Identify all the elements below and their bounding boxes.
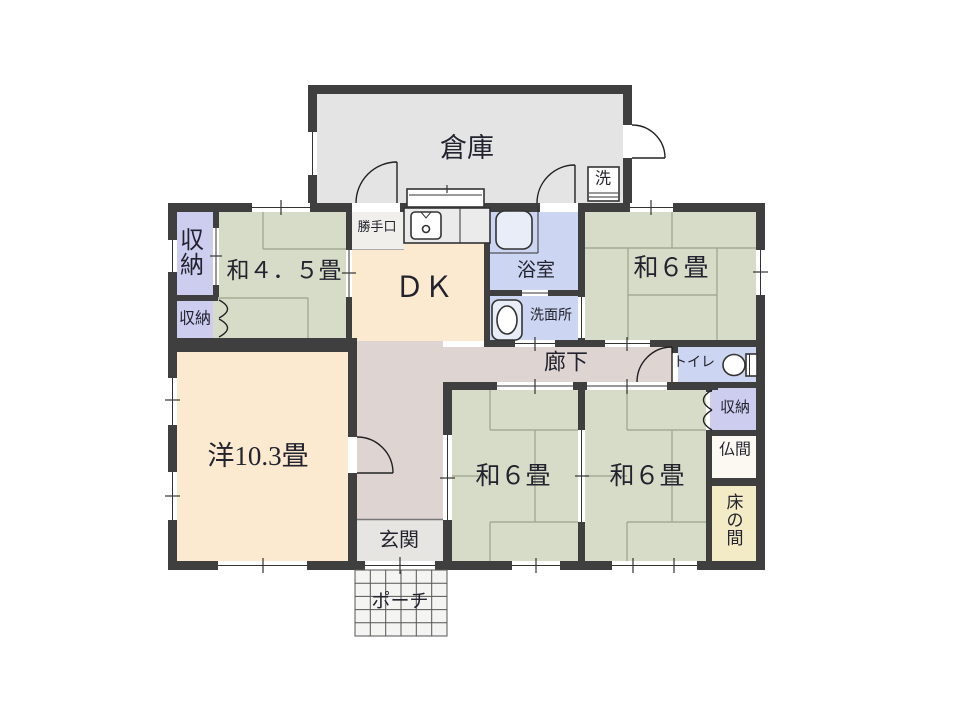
toilet-label: トイレ (673, 357, 715, 372)
warehouse-exterior-door (632, 125, 665, 158)
toilet-tank-icon (746, 354, 757, 376)
washitsu-4-5-label: 和４．５畳 (227, 259, 342, 283)
washitsu-6-se-label: 和６畳 (609, 464, 684, 490)
western-room-label: 洋10.3畳 (207, 442, 308, 470)
bathroom-label: 浴室 (517, 261, 555, 281)
closet-upper-left-label: 収納 (179, 229, 205, 279)
closet-lower-left-label: 収納 (179, 312, 211, 329)
closet-right-label: 収納 (720, 401, 750, 417)
bathtub-icon (496, 211, 532, 249)
dk-label: ＤＫ (395, 273, 453, 303)
butsuma-label: 仏間 (719, 443, 751, 460)
back-door-label: 勝手口 (357, 220, 396, 234)
floorplan-drawing (0, 0, 960, 720)
washitsu-6-sw-label: 和６畳 (475, 464, 550, 490)
entrance-label: 玄関 (379, 531, 419, 552)
floorplan-canvas: 倉庫 収納 収納 和４．５畳 勝手口 ＤＫ 浴室 洗面所 洗 和６畳 廊下 トイ… (0, 0, 960, 720)
washitsu-6-ne-label: 和６畳 (633, 256, 708, 282)
warehouse-label: 倉庫 (440, 134, 494, 162)
toilet-bowl-icon (723, 355, 745, 376)
laundry-label: 洗 (595, 172, 611, 189)
washroom-label: 洗面所 (530, 310, 572, 325)
corridor-label: 廊下 (544, 350, 588, 373)
porch-label: ポーチ (371, 592, 428, 612)
corridor-vertical (352, 341, 443, 520)
tokonoma-label: 床の間 (726, 494, 744, 548)
kitchen-pass-counter (407, 189, 484, 207)
